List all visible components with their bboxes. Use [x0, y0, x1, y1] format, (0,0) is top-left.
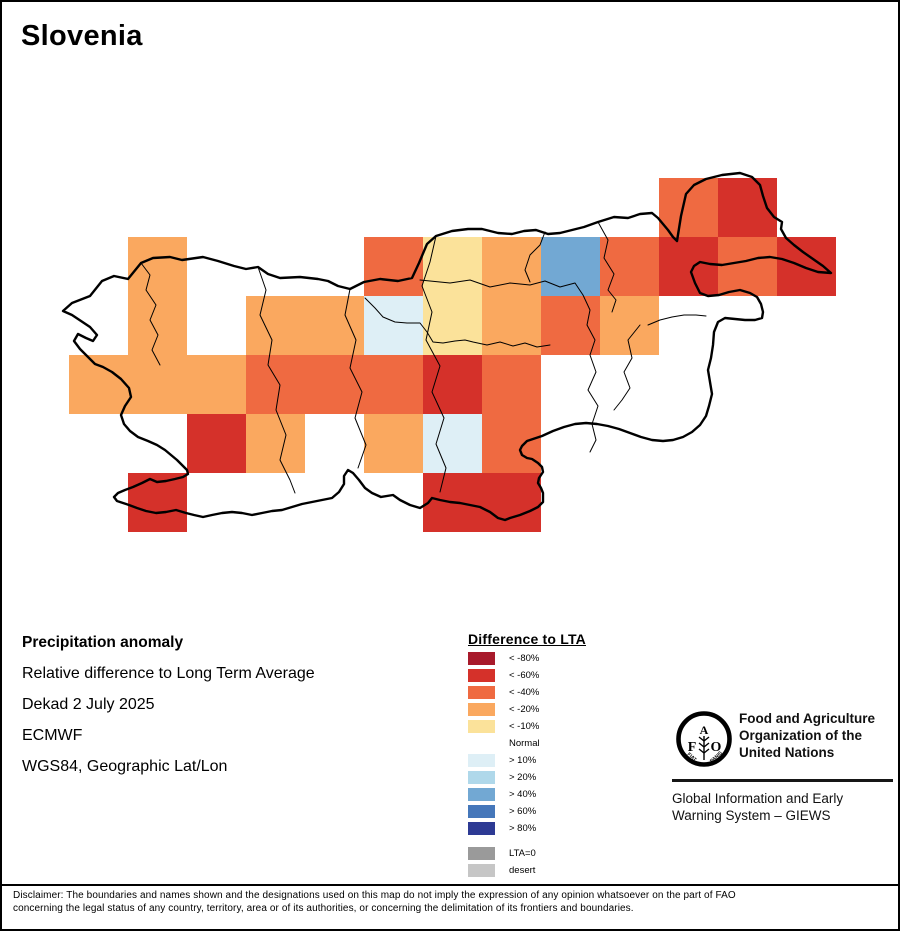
legend-label-desert: desert: [509, 864, 535, 877]
grid-cell-r2c7-lt10: [423, 237, 482, 296]
grid-cell-r5c3-lt60: [187, 414, 246, 473]
grid-cell-r3c8-lt20: [482, 296, 541, 355]
grid-cell-r5c7-gt10: [423, 414, 482, 473]
legend-label-lt80: < -80%: [509, 652, 539, 665]
legend-label-lt10: < -10%: [509, 720, 539, 733]
legend-item-lt80: < -80%: [468, 652, 586, 665]
legend-swatch-lt80: [468, 652, 495, 665]
giews-label: Global Information and Early Warning Sys…: [672, 790, 843, 824]
legend-item-gt10: > 10%: [468, 754, 586, 767]
grid-cell-r3c6-gt10: [364, 296, 423, 355]
info-projection: WGS84, Geographic Lat/Lon: [22, 758, 315, 776]
grid-cell-r4c8-lt40: [482, 355, 541, 414]
grid-cell-r5c4-lt20: [246, 414, 305, 473]
grid-cell-r5c6-lt20: [364, 414, 423, 473]
grid-cell-r2c12-lt40: [718, 237, 777, 296]
legend-item-desert: desert: [468, 864, 586, 877]
grid-cell-r4c5-lt40: [305, 355, 364, 414]
legend-swatch-lt20: [468, 703, 495, 716]
grid-cell-r3c4-lt20: [246, 296, 305, 355]
legend-item-gt40: > 40%: [468, 788, 586, 801]
legend-label-lt20: < -20%: [509, 703, 539, 716]
grid-cell-r2c11-lt60: [659, 237, 718, 296]
legend-swatch-lta0: [468, 847, 495, 860]
grid-cell-r3c2-lt20: [128, 296, 187, 355]
legend-swatch-gt20: [468, 771, 495, 784]
legend-label-lt40: < -40%: [509, 686, 539, 699]
info-dekad: Dekad 2 July 2025: [22, 696, 315, 714]
fao-emblem-letter-a: A: [700, 723, 709, 737]
grid-cell-r6c8-lt60: [482, 473, 541, 532]
legend-swatch-gt80: [468, 822, 495, 835]
info-source: ECMWF: [22, 727, 315, 745]
giews-line1: Global Information and Early: [672, 790, 843, 807]
legend-label-lta0: LTA=0: [509, 847, 536, 860]
disclaimer-line1: Disclaimer: The boundaries and names sho…: [13, 889, 888, 902]
legend-swatch-gt40: [468, 788, 495, 801]
grid-cell-r5c8-lt40: [482, 414, 541, 473]
legend-label-gt10: > 10%: [509, 754, 536, 767]
legend-item-normal: Normal: [468, 737, 586, 750]
fao-organization-name: Food and Agriculture Organization of the…: [739, 710, 875, 761]
disclaimer-line2: concerning the legal status of any count…: [13, 902, 888, 915]
legend-label-gt40: > 40%: [509, 788, 536, 801]
legend-swatch-lt60: [468, 669, 495, 682]
page-title: Slovenia: [21, 20, 143, 53]
legend: Difference to LTA < -80%< -60%< -40%< -2…: [468, 631, 586, 881]
legend-swatch-desert: [468, 864, 495, 877]
grid-cell-r4c1-lt20: [69, 355, 128, 414]
legend-item-lt60: < -60%: [468, 669, 586, 682]
legend-label-lt60: < -60%: [509, 669, 539, 682]
legend-item-lt10: < -10%: [468, 720, 586, 733]
grid-cell-r1c12-lt60: [718, 178, 777, 237]
legend-swatch-lt10: [468, 720, 495, 733]
legend-label-gt20: > 20%: [509, 771, 536, 784]
info-subtitle: Relative difference to Long Term Average: [22, 665, 315, 683]
legend-label-gt60: > 60%: [509, 805, 536, 818]
legend-item-gt20: > 20%: [468, 771, 586, 784]
legend-label-gt80: > 80%: [509, 822, 536, 835]
legend-item-gt80: > 80%: [468, 822, 586, 835]
grid-cell-r3c7-lt10: [423, 296, 482, 355]
legend-swatch-gt60: [468, 805, 495, 818]
legend-items: < -80%< -60%< -40%< -20%< -10%Normal> 10…: [468, 652, 586, 877]
grid-cell-r3c9-lt40: [541, 296, 600, 355]
grid-cell-r4c4-lt40: [246, 355, 305, 414]
grid-cell-r4c3-lt20: [187, 355, 246, 414]
legend-item-lt40: < -40%: [468, 686, 586, 699]
legend-label-normal: Normal: [509, 737, 540, 750]
grid-cell-r2c13-lt60: [777, 237, 836, 296]
grid-cell-r2c9-gt40: [541, 237, 600, 296]
fao-org-line1: Food and Agriculture: [739, 710, 875, 727]
fao-org-line2: Organization of the: [739, 727, 875, 744]
grid-cell-r4c7-lt60: [423, 355, 482, 414]
fao-separator-line: [672, 779, 893, 782]
grid-cell-r4c6-lt40: [364, 355, 423, 414]
legend-title: Difference to LTA: [468, 631, 586, 647]
giews-line2: Warning System – GIEWS: [672, 807, 843, 824]
grid-cell-r2c6-lt40: [364, 237, 423, 296]
legend-item-gt60: > 60%: [468, 805, 586, 818]
grid-cell-r4c2-lt20: [128, 355, 187, 414]
legend-item-lta0: LTA=0: [468, 847, 586, 860]
fao-logo-icon: A F O FIAT PANIS: [674, 710, 734, 770]
fao-org-line3: United Nations: [739, 744, 875, 761]
legend-item-lt20: < -20%: [468, 703, 586, 716]
map-info-block: Precipitation anomaly Relative differenc…: [22, 634, 315, 789]
legend-swatch-gt10: [468, 754, 495, 767]
info-heading: Precipitation anomaly: [22, 634, 315, 652]
legend-swatch-lt40: [468, 686, 495, 699]
disclaimer: Disclaimer: The boundaries and names sho…: [0, 884, 900, 915]
